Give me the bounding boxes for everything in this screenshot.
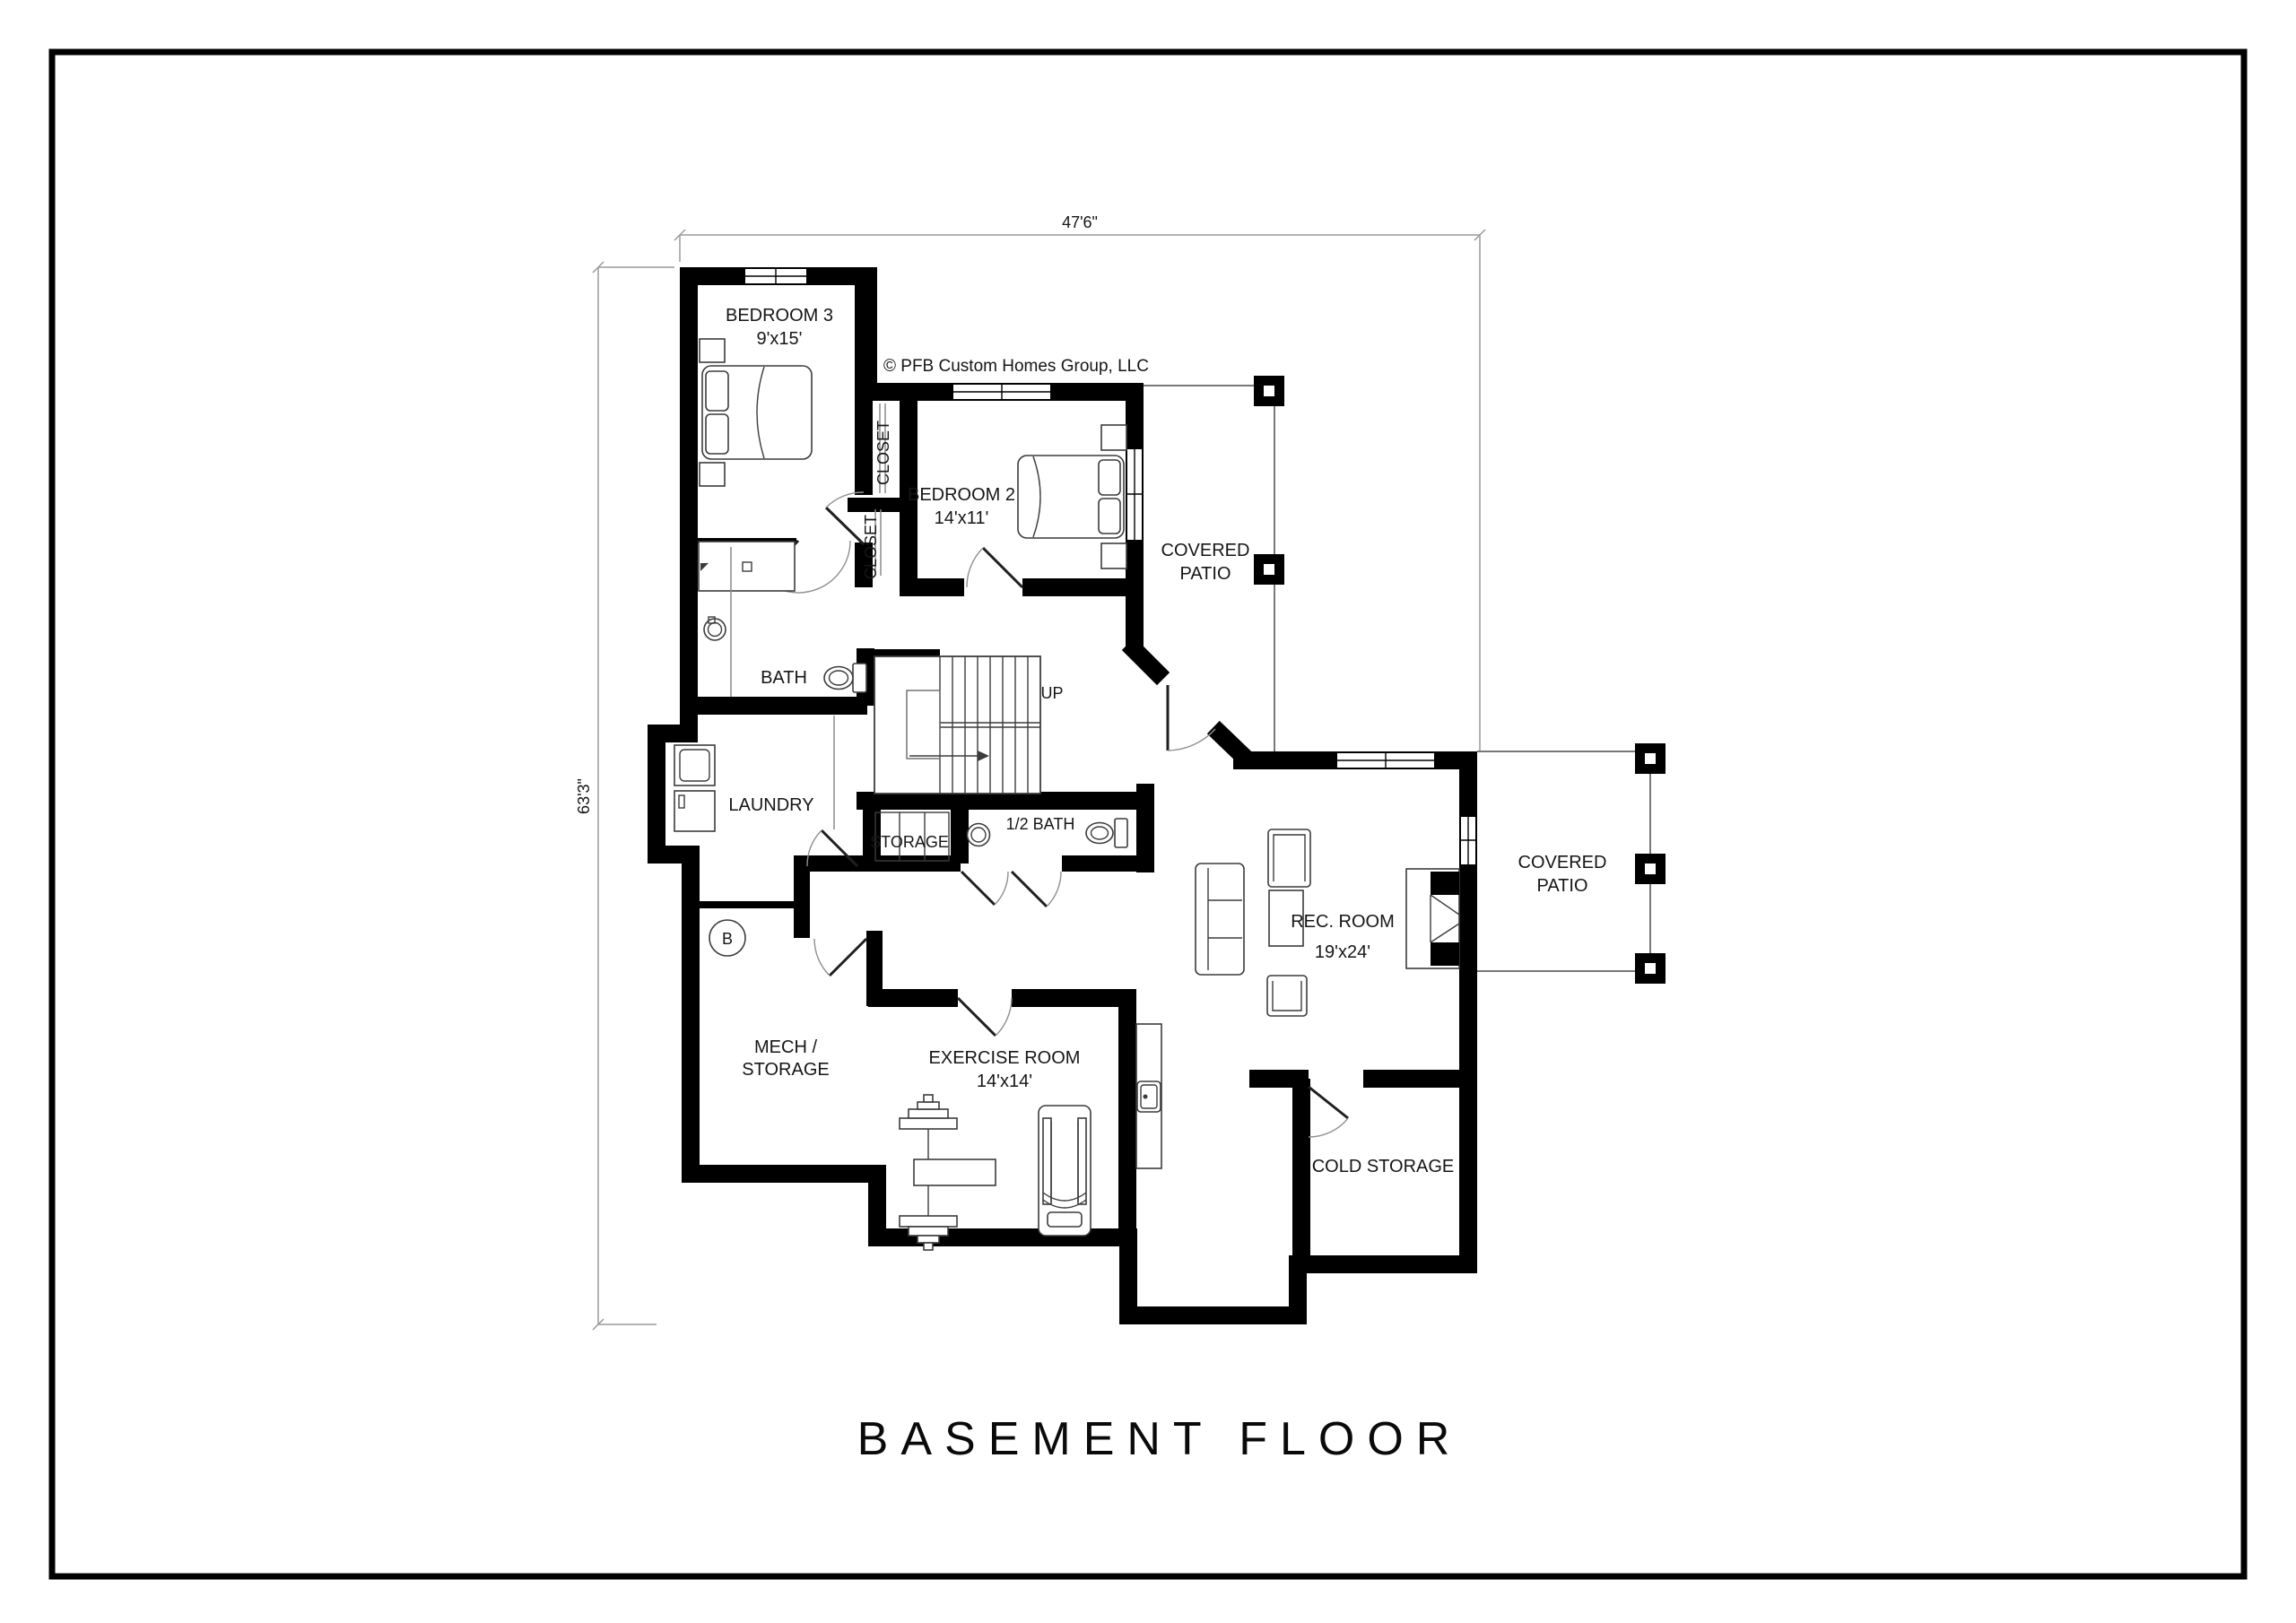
window bbox=[744, 268, 807, 284]
label-patio-upper-1: COVERED bbox=[1161, 541, 1250, 560]
b-marker: B bbox=[709, 920, 745, 956]
vanity bbox=[699, 542, 795, 591]
door-patio bbox=[1168, 685, 1215, 751]
armchair bbox=[1268, 829, 1310, 887]
door-mech bbox=[814, 939, 866, 976]
label-cold-storage: COLD STORAGE bbox=[1312, 1157, 1455, 1176]
window bbox=[952, 384, 1051, 400]
stairs-up-label: UP bbox=[1040, 684, 1063, 702]
label-laundry: LAUNDRY bbox=[728, 795, 813, 815]
sink-icon bbox=[968, 824, 990, 846]
door-exercise bbox=[958, 998, 1012, 1036]
sofa bbox=[1196, 864, 1244, 975]
nightstand bbox=[1101, 543, 1126, 568]
armchair bbox=[1267, 976, 1307, 1016]
toilet-icon bbox=[824, 664, 866, 692]
bedroom3-furniture bbox=[700, 339, 812, 486]
exercise-equipment bbox=[900, 1095, 1091, 1250]
label-patio-right-1: COVERED bbox=[1518, 853, 1607, 872]
staircase: UP bbox=[874, 656, 1064, 794]
label-bedroom3: BEDROOM 3 bbox=[726, 306, 833, 325]
label-rec-room: REC. ROOM bbox=[1291, 912, 1395, 932]
label-bedroom2: BEDROOM 2 bbox=[908, 485, 1015, 505]
window bbox=[1460, 816, 1476, 865]
nightstand bbox=[1101, 425, 1126, 450]
label-closet-lower: CLOSET bbox=[862, 515, 880, 579]
nightstand bbox=[700, 339, 725, 362]
treadmill-icon bbox=[1039, 1106, 1091, 1236]
window bbox=[1126, 448, 1143, 541]
b-marker-label: B bbox=[722, 930, 733, 948]
pillow bbox=[1099, 460, 1120, 495]
floor-plan-drawing: 47'6" 63'3" bbox=[0, 0, 2296, 1623]
label-bath: BATH bbox=[761, 668, 807, 688]
dryer-icon bbox=[674, 791, 715, 831]
label-patio-right-2: PATIO bbox=[1536, 876, 1587, 896]
bedroom2-furniture bbox=[1018, 425, 1126, 568]
pillow bbox=[706, 371, 728, 411]
label-half-bath: 1/2 BATH bbox=[1006, 815, 1075, 833]
window bbox=[1336, 752, 1435, 768]
dimension-height-label: 63'3" bbox=[575, 778, 593, 814]
dimension-width-label: 47'6" bbox=[1062, 213, 1098, 231]
toilet-icon bbox=[1086, 819, 1127, 847]
door-storage bbox=[961, 872, 1008, 905]
label-mech-1: MECH / bbox=[754, 1037, 817, 1057]
pillow bbox=[1099, 499, 1120, 534]
fireplace bbox=[1406, 869, 1459, 968]
hall-counter bbox=[1136, 1024, 1161, 1168]
workout-bench bbox=[914, 1159, 996, 1185]
label-exercise-size: 14'x14' bbox=[977, 1072, 1032, 1091]
pillow bbox=[706, 414, 728, 454]
label-bedroom2-size: 14'x11' bbox=[935, 508, 989, 528]
page-title: BASEMENT FLOOR bbox=[857, 1413, 1463, 1465]
copyright-text: © PFB Custom Homes Group, LLC bbox=[883, 357, 1149, 376]
door-bedroom2 bbox=[967, 548, 1022, 587]
label-closet-upper: CLOSET bbox=[874, 421, 892, 485]
drawing-sheet: 47'6" 63'3" bbox=[0, 0, 2296, 1623]
label-bedroom3-size: 9'x15' bbox=[756, 329, 802, 349]
label-patio-upper-2: PATIO bbox=[1179, 564, 1231, 584]
door-cold-storage bbox=[1309, 1087, 1348, 1137]
nightstand bbox=[700, 463, 725, 486]
label-storage: STORAGE bbox=[870, 833, 949, 851]
door-half-bath bbox=[1012, 872, 1061, 907]
label-exercise: EXERCISE ROOM bbox=[929, 1048, 1081, 1068]
label-rec-room-size: 19'x24' bbox=[1315, 942, 1370, 962]
label-mech-2: STORAGE bbox=[742, 1060, 829, 1080]
